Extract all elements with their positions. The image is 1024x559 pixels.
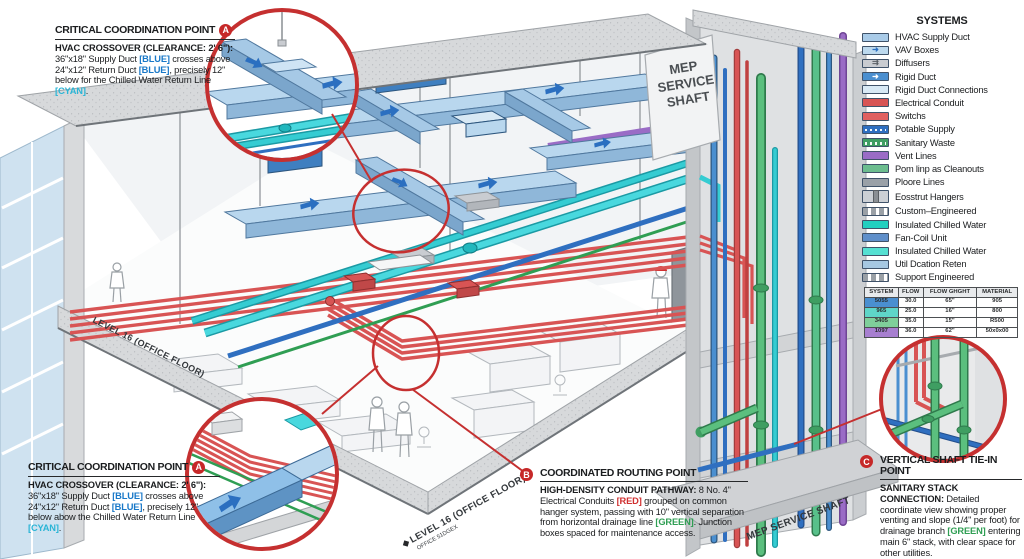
table-row: 96525.016"800 xyxy=(865,307,1018,317)
callout-critical-coordination-bottom: CRITICAL COORDINATION POINT A HVAC CROSS… xyxy=(28,461,220,534)
table-cell: 35.0 xyxy=(898,317,923,327)
badge-c: C xyxy=(860,455,873,468)
callout-text: 36"x18" Supply Duct [BLUE] crosses above… xyxy=(28,491,203,533)
callout-title-text: CRITICAL COORDINATION POINT xyxy=(28,462,188,473)
color-token: [BLUE] xyxy=(112,491,143,501)
legend-label: Support Engineered xyxy=(895,272,974,282)
arrow-icon: ➜ xyxy=(872,46,879,54)
table-cell: 5055 xyxy=(865,297,899,307)
legend-label: Custom–Engineered xyxy=(895,206,976,216)
table-cell: 62" xyxy=(923,327,976,337)
legend-label: Insulated Chilled Water xyxy=(895,246,986,256)
legend-item: Switchs xyxy=(862,111,1022,121)
text-segment: 36"x18" Supply Duct xyxy=(28,491,112,501)
systems-table: SYSTEMFLOWFLOW GHGHTMATERIAL 505530.065"… xyxy=(864,287,1018,338)
table-header-cell: SYSTEM xyxy=(865,288,899,298)
callout-content: VERTICAL SHAFT TIE-IN POINT SANITARY STA… xyxy=(880,455,1022,559)
badge-a: A xyxy=(219,24,232,37)
legend-swatch xyxy=(862,164,889,173)
legend-swatch: ➜ xyxy=(862,72,889,81)
legend-label: VAV Boxes xyxy=(895,45,939,55)
legend-label: Util Dcation Reten xyxy=(895,259,966,269)
callout-title-text: VERTICAL SHAFT TIE-IN POINT xyxy=(880,455,1022,477)
table-cell: 905 xyxy=(977,297,1018,307)
callout-title: CRITICAL COORDINATION POINT A xyxy=(28,461,220,477)
callout-subtitle: HIGH-DENSITY CONDUIT PATHWAY: xyxy=(540,485,696,495)
callout-title-text: COORDINATED ROUTING POINT xyxy=(540,468,696,479)
badge-a: A xyxy=(192,461,205,474)
table-cell: 50x0x00 xyxy=(977,327,1018,337)
legend-swatch xyxy=(862,178,889,187)
callout-body: HVAC CROSSOVER (CLEARANCE: 2' 6"): 36"x1… xyxy=(55,43,235,97)
legend-label: HVAC Supply Duct xyxy=(895,32,970,42)
table-cell: 65" xyxy=(923,297,976,307)
systems-legend: SYSTEMS HVAC Supply Duct➜VAV Boxes⇉Diffu… xyxy=(862,15,1022,286)
legend-swatch xyxy=(862,151,889,160)
legend-item: ⇉Diffusers xyxy=(862,58,1022,68)
legend-swatch xyxy=(862,273,889,282)
legend-item: Pom linp as Cleanouts xyxy=(862,164,1022,174)
color-token: [BLUE] xyxy=(139,54,170,64)
legend-swatch xyxy=(862,33,889,42)
color-token: [CYAN] xyxy=(55,86,86,96)
legend-label: Rigid Duct xyxy=(895,72,936,82)
table-cell: 15" xyxy=(923,317,976,327)
color-token: [GREEN] xyxy=(947,526,985,536)
table-cell: 36.0 xyxy=(898,327,923,337)
mep-coordination-diagram: MEP SERVICE SHAFT LEVEL 16 (OFFICE FLOOR… xyxy=(0,0,1024,559)
legend-item: Sanitary Waste xyxy=(862,138,1022,148)
legend-swatch xyxy=(862,190,889,203)
legend-label: Sanitary Waste xyxy=(895,138,955,148)
legend-swatch xyxy=(862,233,889,242)
legend-item: Support Engineered xyxy=(862,272,1022,282)
text-segment: . xyxy=(86,86,88,96)
table-cell: 30.0 xyxy=(898,297,923,307)
legend-label: Diffusers xyxy=(895,58,930,68)
callout-body: HVAC CROSSOVER (CLEARANCE: 2' 6"): 36"x1… xyxy=(28,480,220,534)
legend-swatch xyxy=(862,207,889,216)
callout-body: HIGH-DENSITY CONDUIT PATHWAY: 8 No. 4" E… xyxy=(540,485,748,539)
table-cell: 25.0 xyxy=(898,307,923,317)
legend-item: ➜Rigid Duct xyxy=(862,72,1022,82)
callout-critical-coordination-top: CRITICAL COORDINATION POINT A HVAC CROSS… xyxy=(55,24,235,97)
color-token: [RED] xyxy=(617,496,642,506)
legend-item: HVAC Supply Duct xyxy=(862,32,1022,42)
table-row: 109736.062"50x0x00 xyxy=(865,327,1018,337)
legend-swatch xyxy=(862,247,889,256)
callout-text: 36"x18" Supply Duct [BLUE] crosses above… xyxy=(55,54,230,96)
arrow-icon: ➜ xyxy=(872,73,879,81)
table-cell: 965 xyxy=(865,307,899,317)
strut-bolt-icon xyxy=(873,190,879,203)
diffuser-arrows-icon: ⇉ xyxy=(872,59,879,67)
table-cell: 800 xyxy=(977,307,1018,317)
callout-title: CRITICAL COORDINATION POINT A xyxy=(55,24,235,40)
legend-item: Fan-Coil Unit xyxy=(862,233,1022,243)
legend-label: Rigid Duct Connections xyxy=(895,85,988,95)
table-row: 340535.015"R500 xyxy=(865,317,1018,327)
legend-item: Vent Lines xyxy=(862,151,1022,161)
legend-label: Vent Lines xyxy=(895,151,936,161)
table-body: 505530.065"90596525.016"800340535.015"R5… xyxy=(865,297,1018,337)
callout-vertical-shaft-tie-in: C VERTICAL SHAFT TIE-IN POINT SANITARY S… xyxy=(860,455,1022,559)
color-token: [BLUE] xyxy=(139,65,170,75)
callout-title-text: CRITICAL COORDINATION POINT xyxy=(55,25,215,36)
legend-label: Pom linp as Cleanouts xyxy=(895,164,984,174)
legend-label: Electrical Conduit xyxy=(895,98,964,108)
callout-title: COORDINATED ROUTING POINT xyxy=(540,468,748,482)
color-token: [BLUE] xyxy=(112,502,143,512)
legend-swatch xyxy=(862,220,889,229)
legend-item: Insulated Chilled Water xyxy=(862,220,1022,230)
legend-item: Ploore Lines xyxy=(862,177,1022,187)
table-cell: 1097 xyxy=(865,327,899,337)
legend-item: ➜VAV Boxes xyxy=(862,45,1022,55)
legend-items: HVAC Supply Duct➜VAV Boxes⇉Diffusers➜Rig… xyxy=(862,32,1022,282)
callout-body: SANITARY STACK CONNECTION: Detailed coor… xyxy=(880,483,1022,558)
callout-title: VERTICAL SHAFT TIE-IN POINT xyxy=(880,455,1022,480)
table-cell: 3405 xyxy=(865,317,899,327)
legend-item: Eosstrut Hangers xyxy=(862,190,1022,203)
legend-label: Fan-Coil Unit xyxy=(895,233,947,243)
table-cell: 16" xyxy=(923,307,976,317)
callout-subtitle: HVAC CROSSOVER (CLEARANCE: 2' 6"): xyxy=(55,43,233,53)
legend-label: Insulated Chilled Water xyxy=(895,220,986,230)
legend-label: Eosstrut Hangers xyxy=(895,192,964,202)
legend-swatch: ➜ xyxy=(862,46,889,55)
legend-item: Electrical Conduit xyxy=(862,98,1022,108)
legend-item: Custom–Engineered xyxy=(862,206,1022,216)
color-token: [GREEN] xyxy=(655,517,693,527)
legend-swatch xyxy=(862,260,889,269)
table-header-cell: FLOW xyxy=(898,288,923,298)
legend-item: Util Dcation Reten xyxy=(862,259,1022,269)
color-token: [CYAN] xyxy=(28,523,59,533)
legend-item: Insulated Chilled Water xyxy=(862,246,1022,256)
legend-item: Rigid Duct Connections xyxy=(862,85,1022,95)
legend-label: Switchs xyxy=(895,111,926,121)
badge-b: B xyxy=(520,468,533,481)
legend-label: Potable Supply xyxy=(895,124,955,134)
table-header-cell: MATERIAL xyxy=(977,288,1018,298)
callout-coordinated-routing: B COORDINATED ROUTING POINT HIGH-DENSITY… xyxy=(520,468,748,539)
table-row: 505530.065"905 xyxy=(865,297,1018,307)
table-header-cell: FLOW GHGHT xyxy=(923,288,976,298)
callout-content: COORDINATED ROUTING POINT HIGH-DENSITY C… xyxy=(540,468,748,539)
legend-swatch xyxy=(862,98,889,107)
legend-item: Potable Supply xyxy=(862,124,1022,134)
legend-swatch: ⇉ xyxy=(862,59,889,68)
table-header-row: SYSTEMFLOWFLOW GHGHTMATERIAL xyxy=(865,288,1018,298)
legend-label: Ploore Lines xyxy=(895,177,944,187)
legend-title: SYSTEMS xyxy=(862,15,1022,27)
legend-swatch xyxy=(862,85,889,94)
text-segment: . xyxy=(59,523,61,533)
legend-swatch xyxy=(862,138,889,147)
legend-swatch xyxy=(862,125,889,134)
legend-swatch xyxy=(862,112,889,121)
table-cell: R500 xyxy=(977,317,1018,327)
callout-subtitle: HVAC CROSSOVER (CLEARANCE: 2' 6"): xyxy=(28,480,206,490)
text-segment: 36"x18" Supply Duct xyxy=(55,54,139,64)
